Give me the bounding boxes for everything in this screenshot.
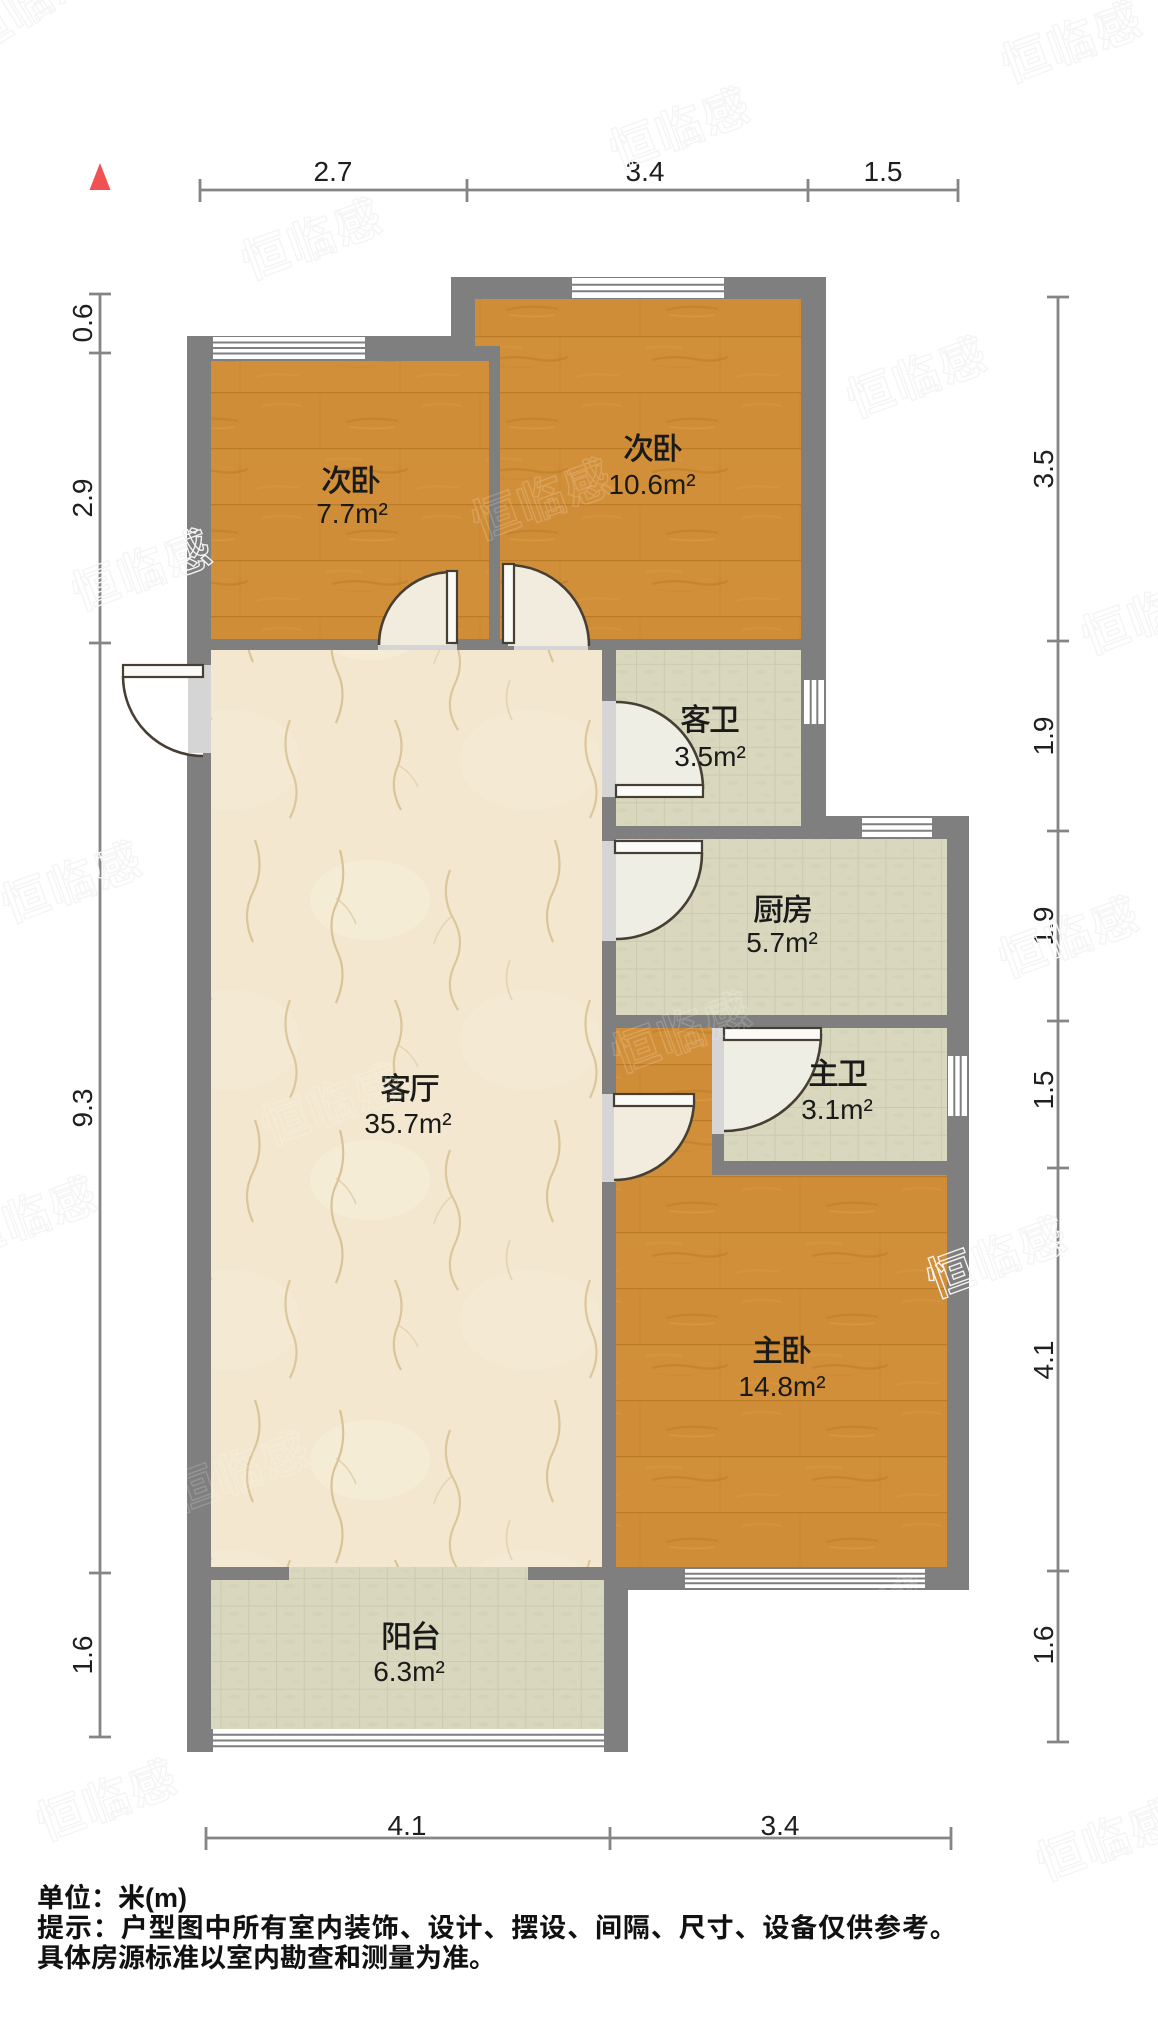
svg-text:1.6: 1.6 (1028, 1626, 1059, 1665)
svg-text:5.7m²: 5.7m² (746, 927, 818, 958)
svg-text:1.6: 1.6 (67, 1636, 98, 1675)
svg-text:6.3m²: 6.3m² (373, 1656, 445, 1687)
svg-text:3.5m²: 3.5m² (674, 741, 746, 772)
svg-text:3.4: 3.4 (761, 1810, 800, 1841)
svg-text:4.1: 4.1 (388, 1810, 427, 1841)
svg-text:2.9: 2.9 (67, 479, 98, 518)
svg-text:1.9: 1.9 (1028, 717, 1059, 756)
svg-text:35.7m²: 35.7m² (364, 1108, 451, 1139)
svg-text:3.5: 3.5 (1028, 450, 1059, 489)
svg-text:1.5: 1.5 (1028, 1071, 1059, 1110)
svg-text:7.7m²: 7.7m² (316, 498, 388, 529)
svg-text:2.7: 2.7 (314, 156, 353, 187)
svg-text:(m): (m) (145, 1883, 187, 1913)
svg-text:0.6: 0.6 (67, 304, 98, 343)
svg-text:14.8m²: 14.8m² (738, 1371, 825, 1402)
svg-text:3.1m²: 3.1m² (801, 1094, 873, 1125)
svg-text:10.6m²: 10.6m² (608, 469, 695, 500)
svg-text:1.5: 1.5 (864, 156, 903, 187)
svg-text:9.3: 9.3 (67, 1089, 98, 1128)
svg-text:4.1: 4.1 (1028, 1341, 1059, 1380)
svg-text:1.9: 1.9 (1028, 907, 1059, 946)
